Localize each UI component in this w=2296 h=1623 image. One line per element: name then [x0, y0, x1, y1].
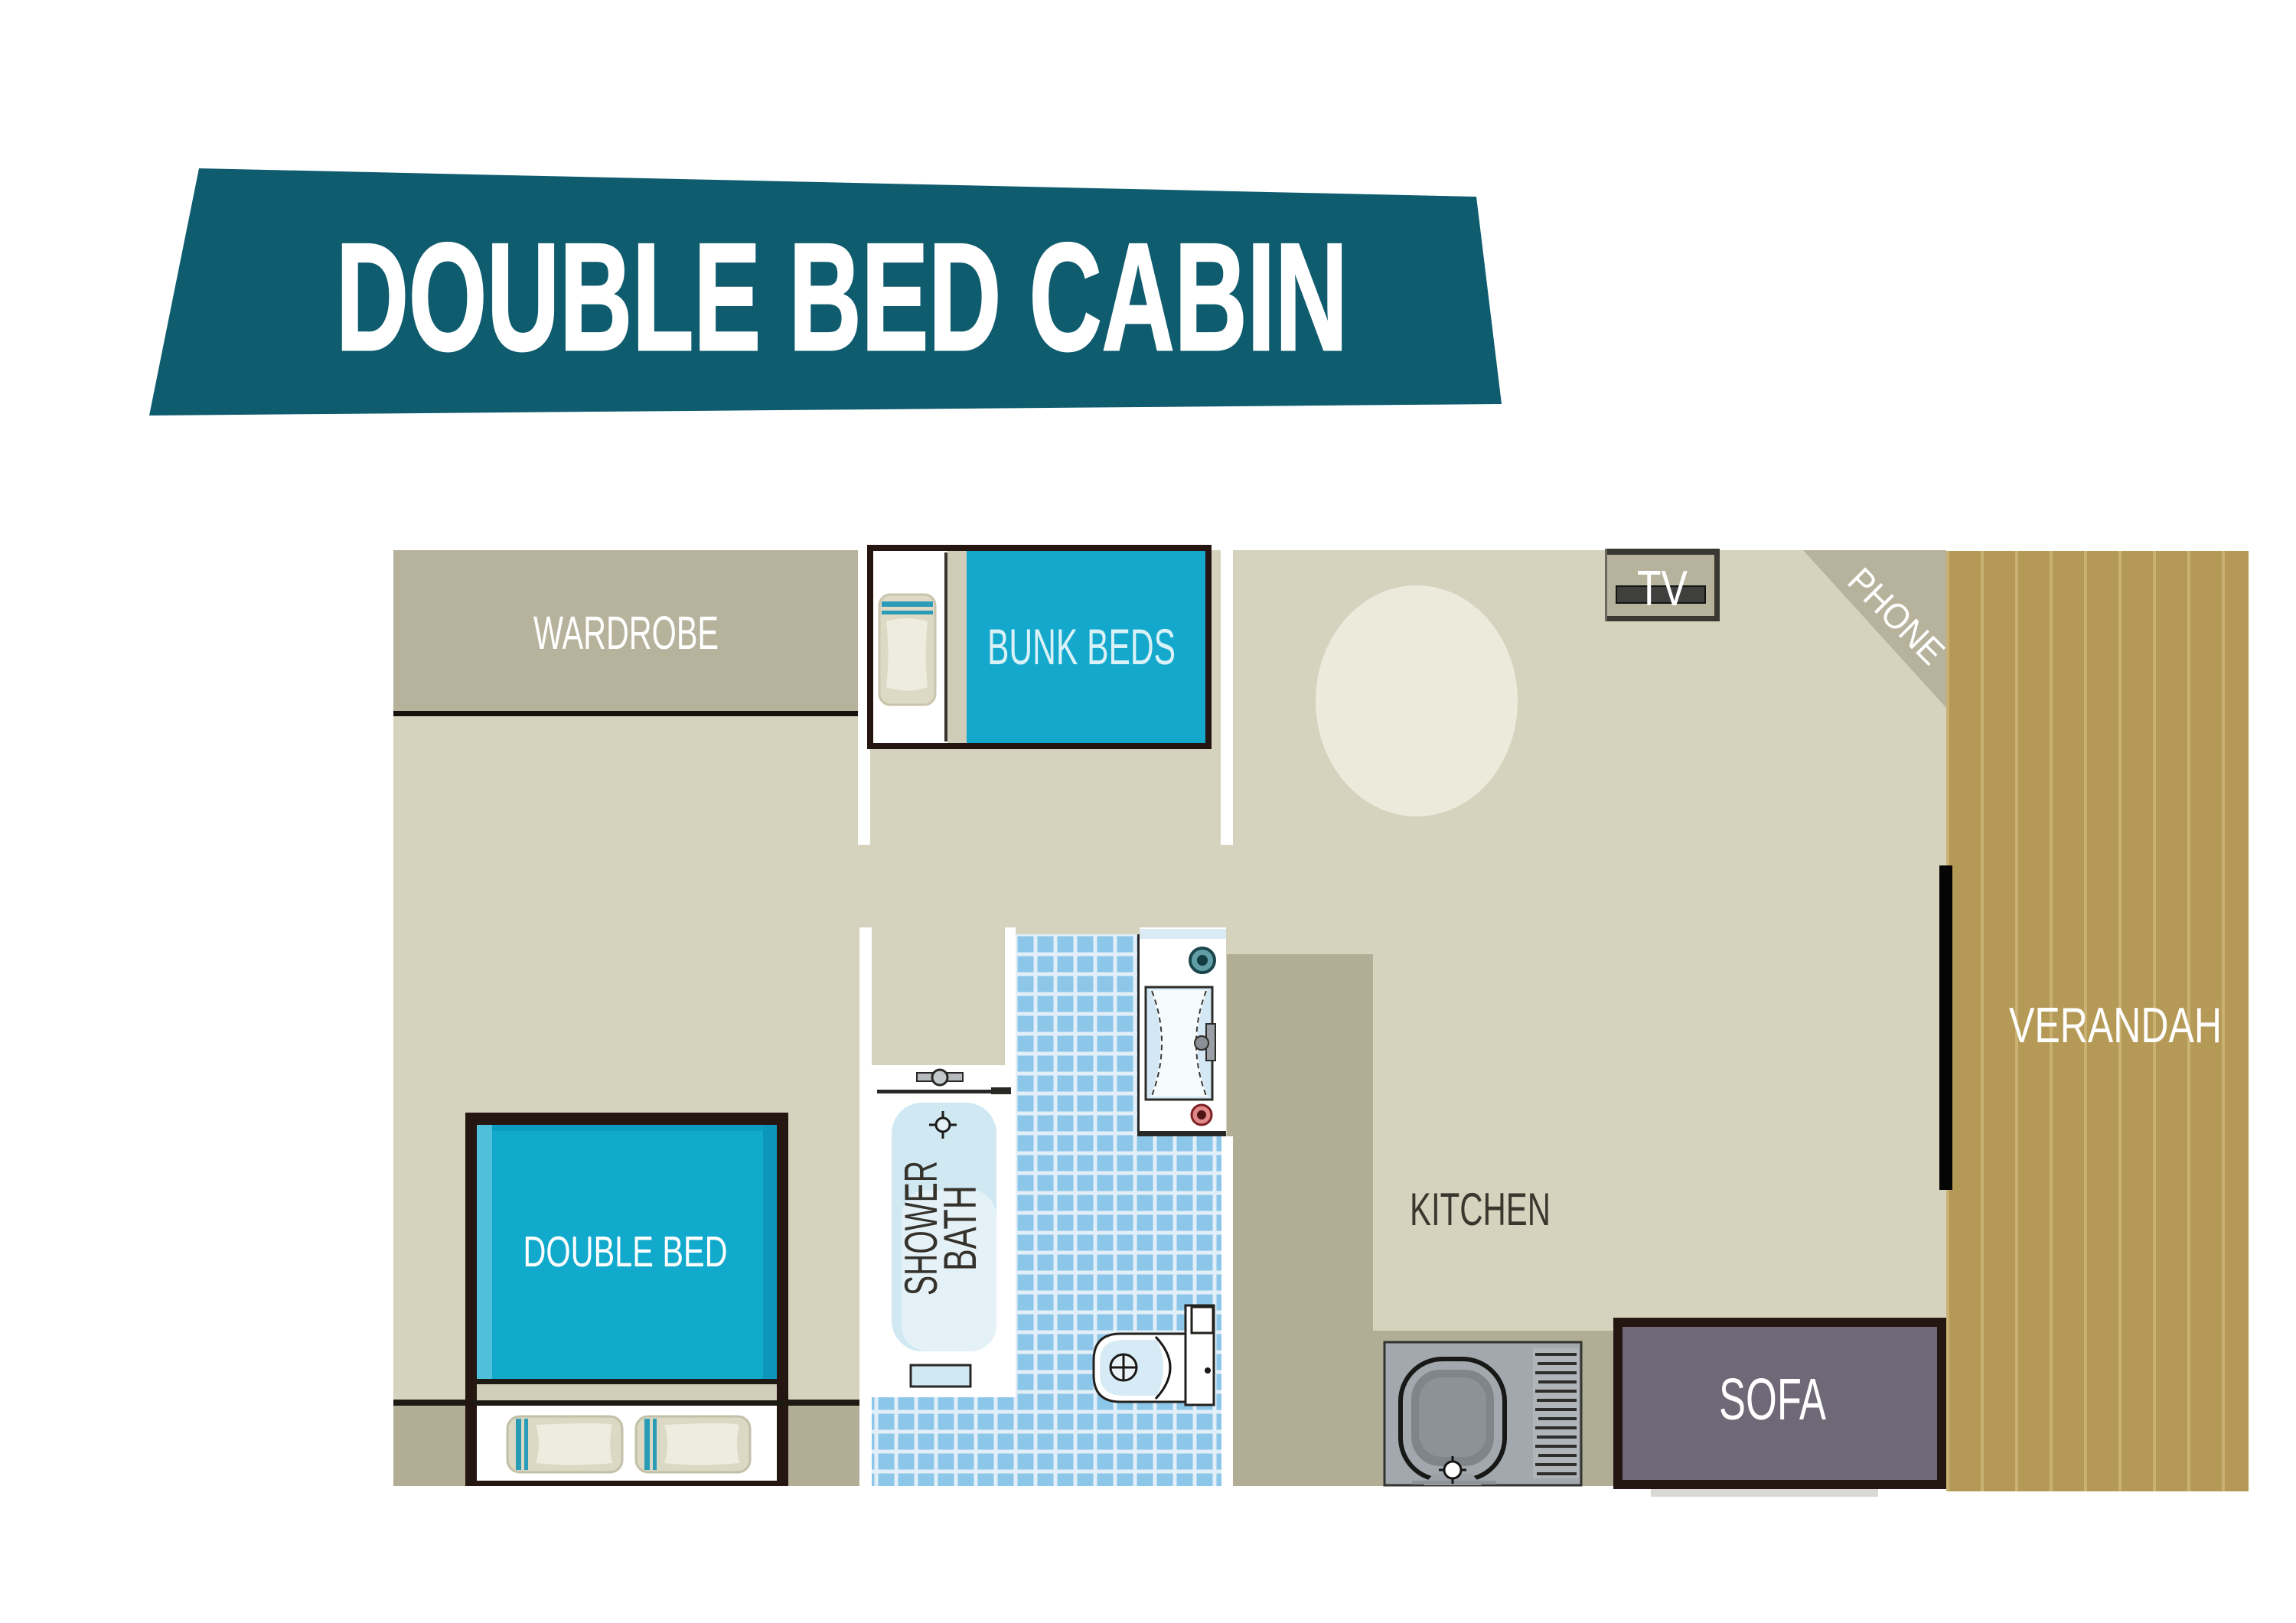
svg-text:BATH: BATH [934, 1185, 986, 1271]
svg-text:BUNK BEDS: BUNK BEDS [987, 618, 1176, 675]
svg-text:SOFA: SOFA [1719, 1367, 1826, 1432]
svg-text:DOUBLE BED CABIN: DOUBLE BED CABIN [336, 212, 1348, 383]
svg-text:VERANDAH: VERANDAH [2009, 997, 2222, 1053]
svg-text:TV: TV [1637, 560, 1688, 616]
svg-text:KITCHEN: KITCHEN [1410, 1184, 1551, 1235]
svg-text:WARDROBE: WARDROBE [533, 607, 719, 659]
svg-text:DOUBLE BED: DOUBLE BED [523, 1227, 728, 1276]
